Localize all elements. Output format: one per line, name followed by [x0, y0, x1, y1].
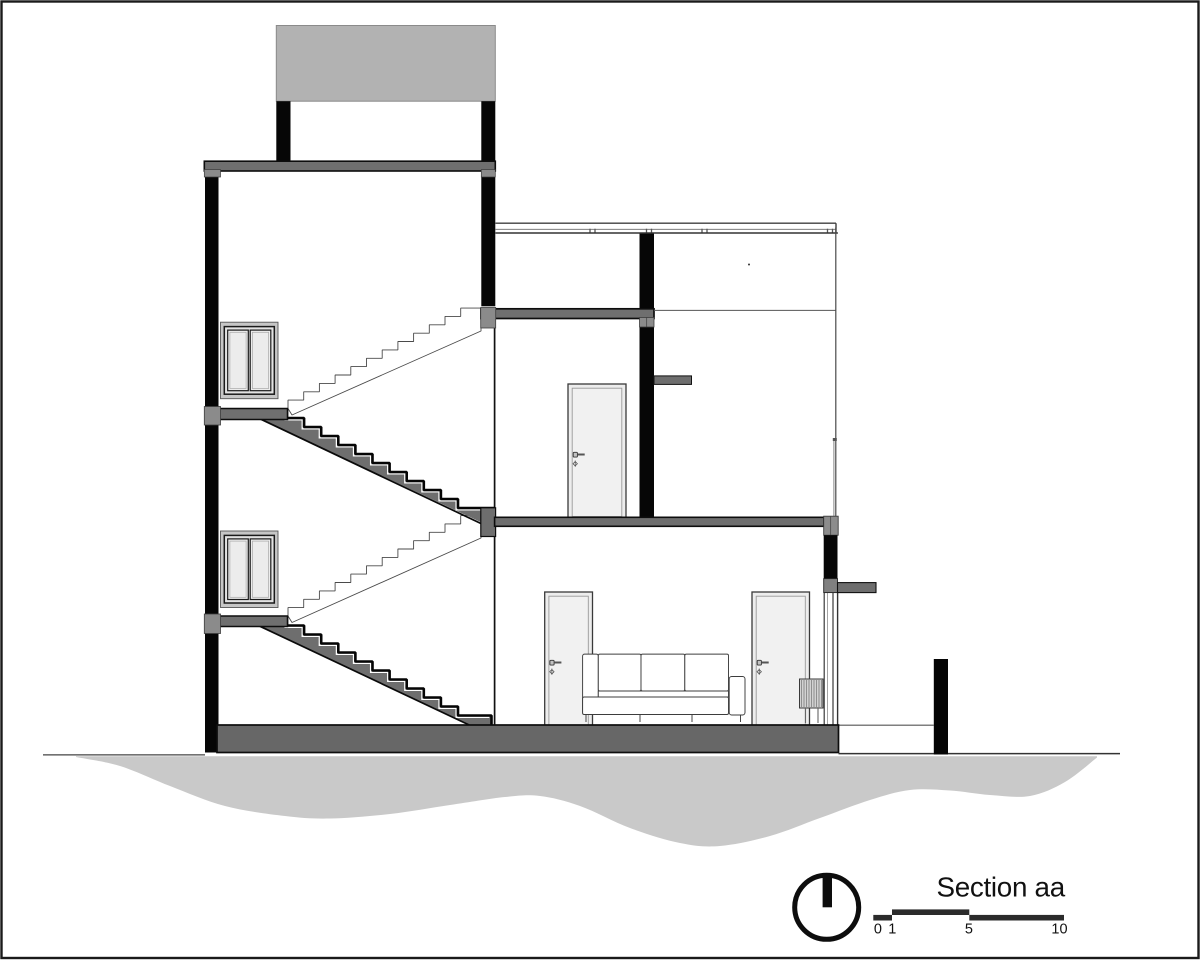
svg-text:Section aa: Section aa — [937, 871, 1066, 902]
svg-text:10: 10 — [1051, 922, 1067, 938]
svg-text:0: 0 — [874, 922, 882, 938]
svg-text:5: 5 — [965, 922, 973, 938]
svg-text:1: 1 — [888, 922, 896, 938]
